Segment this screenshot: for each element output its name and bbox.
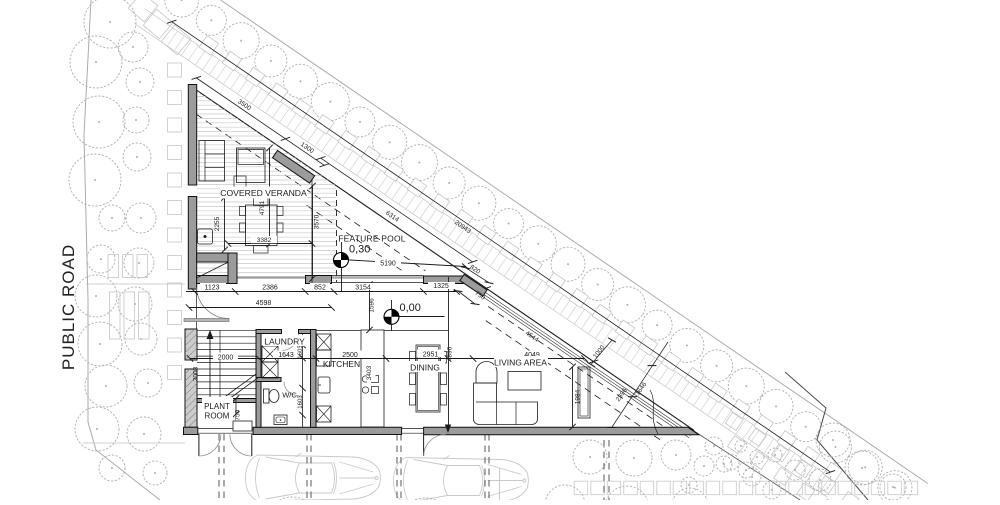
svg-text:3003: 3003: [193, 366, 200, 381]
svg-text:4791: 4791: [259, 200, 266, 215]
svg-text:ROOM: ROOM: [205, 412, 230, 421]
svg-text:0,00: 0,00: [400, 302, 421, 314]
svg-text:2000: 2000: [218, 354, 234, 361]
svg-text:2951: 2951: [423, 351, 439, 358]
svg-text:3403: 3403: [366, 365, 373, 380]
svg-text:5190: 5190: [380, 261, 396, 268]
svg-text:852: 852: [314, 285, 326, 292]
svg-text:2255: 2255: [214, 216, 221, 231]
svg-text:COVERED VERANDA: COVERED VERANDA: [220, 188, 307, 198]
svg-text:1596: 1596: [369, 298, 376, 313]
svg-text:3382: 3382: [257, 237, 272, 244]
svg-text:W/C: W/C: [282, 391, 297, 400]
svg-text:PLANT: PLANT: [204, 402, 230, 411]
svg-text:LAUNDRY: LAUNDRY: [264, 337, 305, 347]
svg-text:3154: 3154: [355, 284, 371, 291]
svg-text:PUBLIC ROAD: PUBLIC ROAD: [59, 244, 78, 370]
svg-text:4598: 4598: [256, 300, 272, 307]
svg-text:1984: 1984: [575, 389, 582, 404]
svg-text:1603: 1603: [298, 395, 304, 409]
svg-text:LIVING AREA: LIVING AREA: [494, 358, 547, 368]
svg-text:0,30: 0,30: [349, 244, 370, 256]
svg-text:1123: 1123: [204, 285, 219, 292]
svg-text:3570: 3570: [314, 214, 321, 229]
svg-text:4896: 4896: [447, 346, 454, 361]
svg-text:KITCHEN: KITCHEN: [323, 359, 360, 369]
svg-text:2386: 2386: [262, 285, 278, 292]
svg-text:1325: 1325: [433, 283, 449, 290]
svg-text:DINING: DINING: [410, 363, 440, 373]
svg-text:FEATURE POOL: FEATURE POOL: [338, 234, 405, 244]
svg-text:1643: 1643: [278, 352, 294, 359]
svg-text:1603: 1603: [298, 345, 304, 359]
